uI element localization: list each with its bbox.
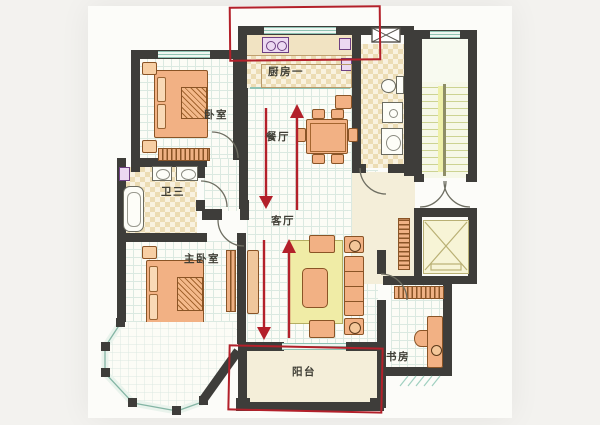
wall-segment	[468, 30, 477, 182]
room-label-living: 客厅	[271, 213, 295, 228]
pillow	[149, 266, 158, 292]
wall-segment	[414, 208, 476, 217]
desk-chair-symbol	[414, 330, 428, 347]
table-inner	[310, 123, 346, 152]
wall-segment	[202, 209, 222, 220]
wardrobe-symbol	[226, 250, 236, 312]
wall-segment	[117, 233, 207, 242]
stair-rail	[443, 84, 446, 176]
lamp-icon	[431, 345, 442, 356]
window	[158, 51, 210, 58]
room-label-study: 书房	[386, 349, 410, 364]
wall-segment	[414, 30, 422, 182]
chair-symbol	[331, 154, 344, 164]
wall-segment	[383, 367, 452, 376]
wall-segment	[404, 26, 414, 176]
shower-symbol	[382, 102, 403, 123]
wall-segment	[131, 50, 140, 172]
nightstand	[142, 62, 157, 75]
hall-cabinet-symbol	[398, 218, 410, 270]
sink-symbol	[381, 128, 403, 155]
wall-segment	[468, 208, 477, 284]
room-label-master-bedroom: 主卧室	[184, 251, 220, 266]
nightstand	[142, 140, 157, 153]
pillow	[157, 77, 166, 102]
cabinet-symbol	[335, 95, 352, 109]
chair-symbol	[312, 109, 325, 119]
wall-segment	[352, 164, 366, 173]
bed-symbol	[146, 260, 204, 328]
sink-basin	[156, 169, 170, 180]
side-table-symbol	[344, 318, 364, 335]
stair-landing	[422, 38, 468, 82]
sink-basin	[386, 135, 401, 151]
armchair-symbol	[309, 320, 335, 338]
plant-icon	[349, 322, 361, 334]
desk-symbol	[427, 316, 443, 368]
nightstand	[142, 246, 157, 259]
wall-segment	[466, 174, 477, 182]
room-label-kitchen: 厨房一	[268, 64, 304, 79]
chair-symbol	[348, 128, 358, 142]
wall-segment	[443, 276, 452, 375]
wall-segment	[237, 233, 246, 344]
window	[430, 31, 460, 38]
pillow	[149, 294, 158, 320]
floor-plan-photo: 卧室 厨房一 餐厅 卫三 客厅 主卧室 书房 阳台	[0, 0, 600, 425]
bathtub-symbol	[123, 186, 144, 232]
floor-corridor	[204, 158, 240, 211]
wall-segment	[117, 158, 126, 334]
stair-stripe	[438, 86, 443, 172]
room-label-dining: 餐厅	[266, 129, 290, 144]
wall-segment	[388, 164, 414, 173]
drain-icon	[389, 109, 398, 118]
quilt-pattern	[177, 277, 203, 311]
pillow	[157, 104, 166, 129]
wall-segment	[414, 208, 422, 284]
room-label-balcony: 阳台	[292, 364, 316, 379]
dining-table-symbol	[306, 119, 348, 154]
sofa-symbol	[344, 256, 364, 316]
bed-symbol	[154, 70, 208, 138]
tv-cabinet-symbol	[247, 250, 259, 314]
sink-basin	[181, 169, 196, 180]
bathtub-inner	[127, 192, 141, 227]
wall-segment	[383, 276, 452, 285]
room-label-bathroom: 卫三	[161, 184, 185, 199]
sink-symbol	[176, 166, 198, 181]
annotation-box-balcony	[227, 344, 383, 413]
sink-symbol	[152, 166, 172, 181]
armchair-symbol	[309, 235, 335, 253]
chair-symbol	[312, 154, 325, 164]
wall-segment	[377, 300, 386, 345]
chair-symbol	[331, 109, 344, 119]
bookshelf-symbol	[394, 286, 444, 299]
toilet-tank	[396, 76, 404, 94]
elevator-symbol	[423, 220, 469, 274]
toilet-symbol	[119, 167, 130, 181]
nightstand	[142, 330, 157, 343]
wall-segment	[377, 250, 386, 274]
wall-segment	[414, 174, 424, 182]
toilet-symbol	[381, 79, 396, 93]
annotation-box-kitchen	[229, 5, 382, 62]
wall-segment	[239, 88, 248, 209]
plant-icon	[349, 240, 361, 252]
side-table-symbol	[344, 236, 364, 253]
wardrobe-symbol	[158, 148, 210, 161]
chair-symbol	[296, 128, 306, 142]
room-label-bedroom: 卧室	[204, 107, 228, 122]
coffee-table-symbol	[302, 268, 328, 308]
